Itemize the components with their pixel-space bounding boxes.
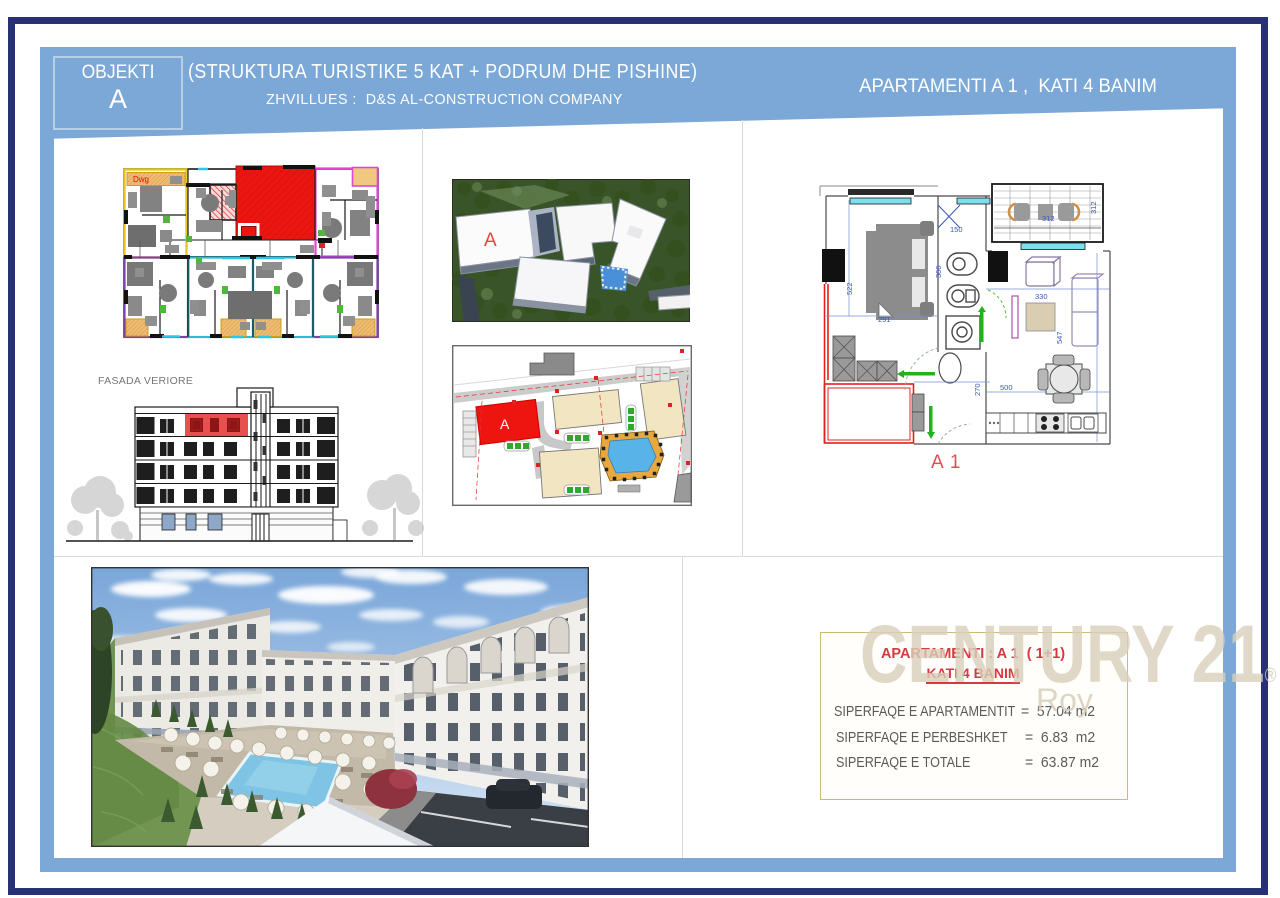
svg-text:150: 150 [950, 225, 963, 234]
svg-text:300: 300 [934, 265, 943, 278]
svg-text:500: 500 [1000, 383, 1013, 392]
svg-text:291: 291 [878, 315, 891, 324]
svg-text:A: A [500, 416, 510, 432]
svg-text:522: 522 [845, 282, 854, 295]
svg-text:330: 330 [1035, 292, 1048, 301]
svg-text:FASADA VERIORE: FASADA VERIORE [98, 375, 193, 387]
svg-text:270: 270 [973, 383, 982, 396]
svg-text:312: 312 [1042, 214, 1055, 223]
svg-text:A 1: A 1 [931, 452, 961, 472]
svg-text:312: 312 [1089, 201, 1098, 214]
svg-text:Dwg: Dwg [133, 175, 149, 184]
svg-text:547: 547 [1055, 331, 1064, 344]
svg-text:A: A [484, 230, 497, 251]
